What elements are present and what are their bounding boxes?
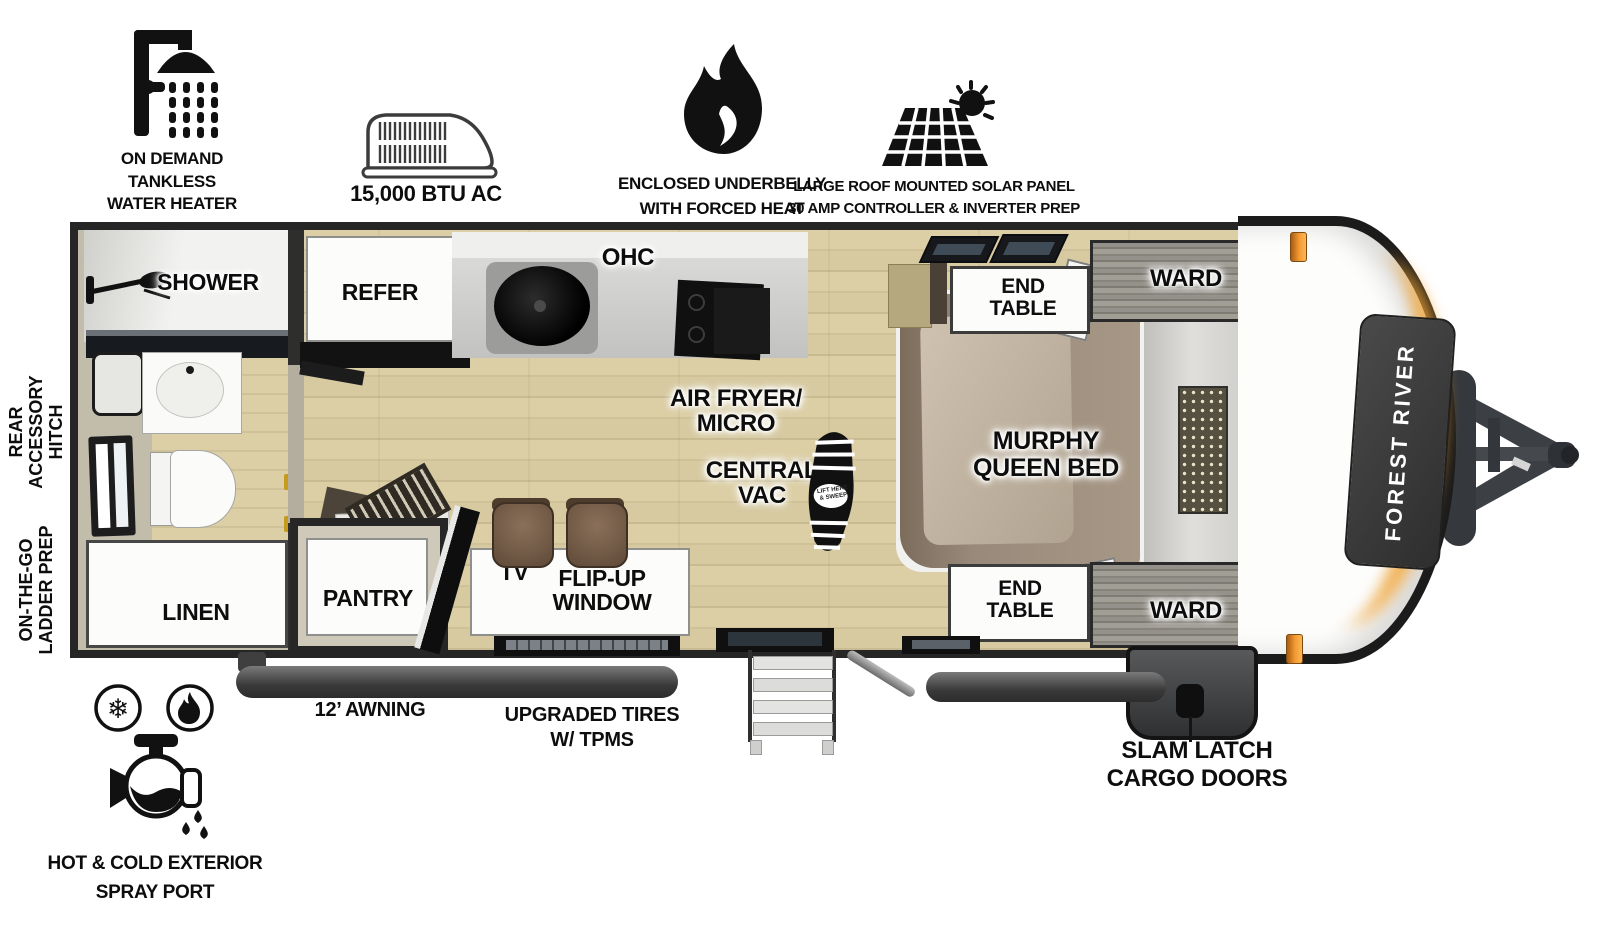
central-vac-label: CENTRAL VAC (706, 458, 819, 509)
ward-bottom-label: WARD (1150, 598, 1222, 623)
floorplan-diagram: ON DEMAND TANKLESS WATER HEATER 15,000 B… (0, 0, 1600, 929)
rear-accessory-hitch-label: REAR ACCESSORY HITCH (6, 347, 66, 517)
bedside-cabinet (930, 256, 947, 324)
bottom-window-pane (912, 640, 970, 649)
marker-light (1286, 634, 1303, 664)
awning-tube (926, 672, 1166, 702)
murphy-bed-label: MURPHY QUEEN BED (973, 428, 1119, 481)
pantry-label: PANTRY (323, 586, 413, 610)
partition-wall-lower (288, 365, 304, 523)
shower-label: SHOWER (157, 270, 259, 294)
awning-label: 12’ AWNING (315, 700, 426, 721)
spray-port-valve-icon: ❄ (86, 680, 226, 840)
end-table-bottom-label: END TABLE (987, 578, 1054, 623)
air-fryer-label: AIR FRYER/ MICRO (670, 386, 802, 437)
bath-faucet (186, 366, 194, 374)
ac-caption: 15,000 BTU AC (350, 182, 502, 205)
ward-top-label: WARD (1150, 266, 1222, 291)
water-heater-caption: ON DEMAND TANKLESS WATER HEATER (107, 148, 237, 216)
ohc-label: OHC (602, 245, 654, 270)
ladder-prep-label: ON-THE-GO LADDER PREP (16, 500, 56, 680)
svg-text:❄: ❄ (107, 694, 130, 725)
flame-icon (674, 42, 770, 166)
marker-light (1290, 232, 1307, 262)
roof-vent (919, 236, 1000, 263)
cargo-door-latch (1176, 684, 1204, 718)
rooftop-ac-icon (352, 104, 502, 186)
kitchen-sink-drain (534, 300, 546, 312)
microwave-box (714, 288, 770, 354)
brand-label: FOREST RIVER (1380, 342, 1420, 542)
cooktop-burner (688, 326, 705, 343)
end-table-top-label: END TABLE (990, 276, 1057, 321)
roof-vent (989, 234, 1069, 263)
tires-label: UPGRADED TIRES W/ TPMS (505, 703, 680, 753)
cooktop-burner (688, 294, 705, 311)
spray-port-caption: HOT & COLD EXTERIOR SPRAY PORT (48, 850, 263, 907)
flip-up-window-label: FLIP-UP WINDOW (552, 566, 651, 615)
stool (566, 502, 628, 568)
entry-steps (748, 650, 836, 754)
linen-label: LINEN (162, 600, 230, 624)
cargo-doors-label: SLAM LATCH CARGO DOORS (1107, 737, 1288, 792)
kitchen-end-panel (888, 264, 932, 328)
bed-cushion-panel (1178, 386, 1228, 514)
awning-tube (236, 666, 678, 698)
solar-caption: LARGE ROOF MOUNTED SOLAR PANEL 30 AMP CO… (788, 176, 1080, 220)
linen-cabinet (86, 540, 288, 648)
entry-door-pane (728, 632, 822, 646)
flip-up-window-slats (506, 640, 668, 650)
stool (492, 502, 554, 568)
shower-head-icon (118, 22, 236, 144)
bath-mirror (92, 352, 144, 416)
solar-panel-sun-icon (874, 78, 998, 174)
brand-panel: FOREST RIVER (1343, 313, 1456, 571)
refer-label: REFER (342, 280, 418, 304)
